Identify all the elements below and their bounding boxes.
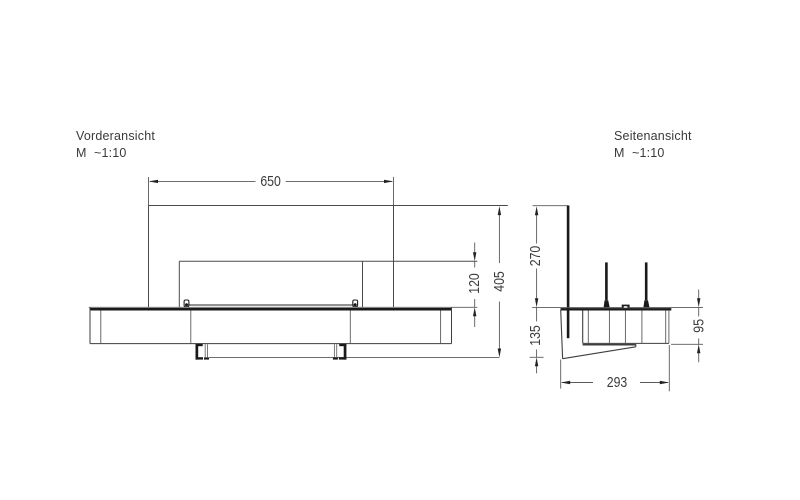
svg-text:135: 135 [527,325,544,346]
svg-text:405: 405 [491,271,508,292]
svg-text:M ~1:10: M ~1:10 [76,146,127,160]
svg-text:293: 293 [607,374,628,391]
svg-text:95: 95 [691,319,708,333]
svg-text:120: 120 [466,273,483,294]
svg-text:650: 650 [260,173,281,190]
svg-text:Vorderansicht: Vorderansicht [76,129,155,143]
svg-text:Seitenansicht: Seitenansicht [614,129,692,143]
svg-text:M ~1:10: M ~1:10 [614,146,665,160]
svg-text:270: 270 [527,246,544,267]
